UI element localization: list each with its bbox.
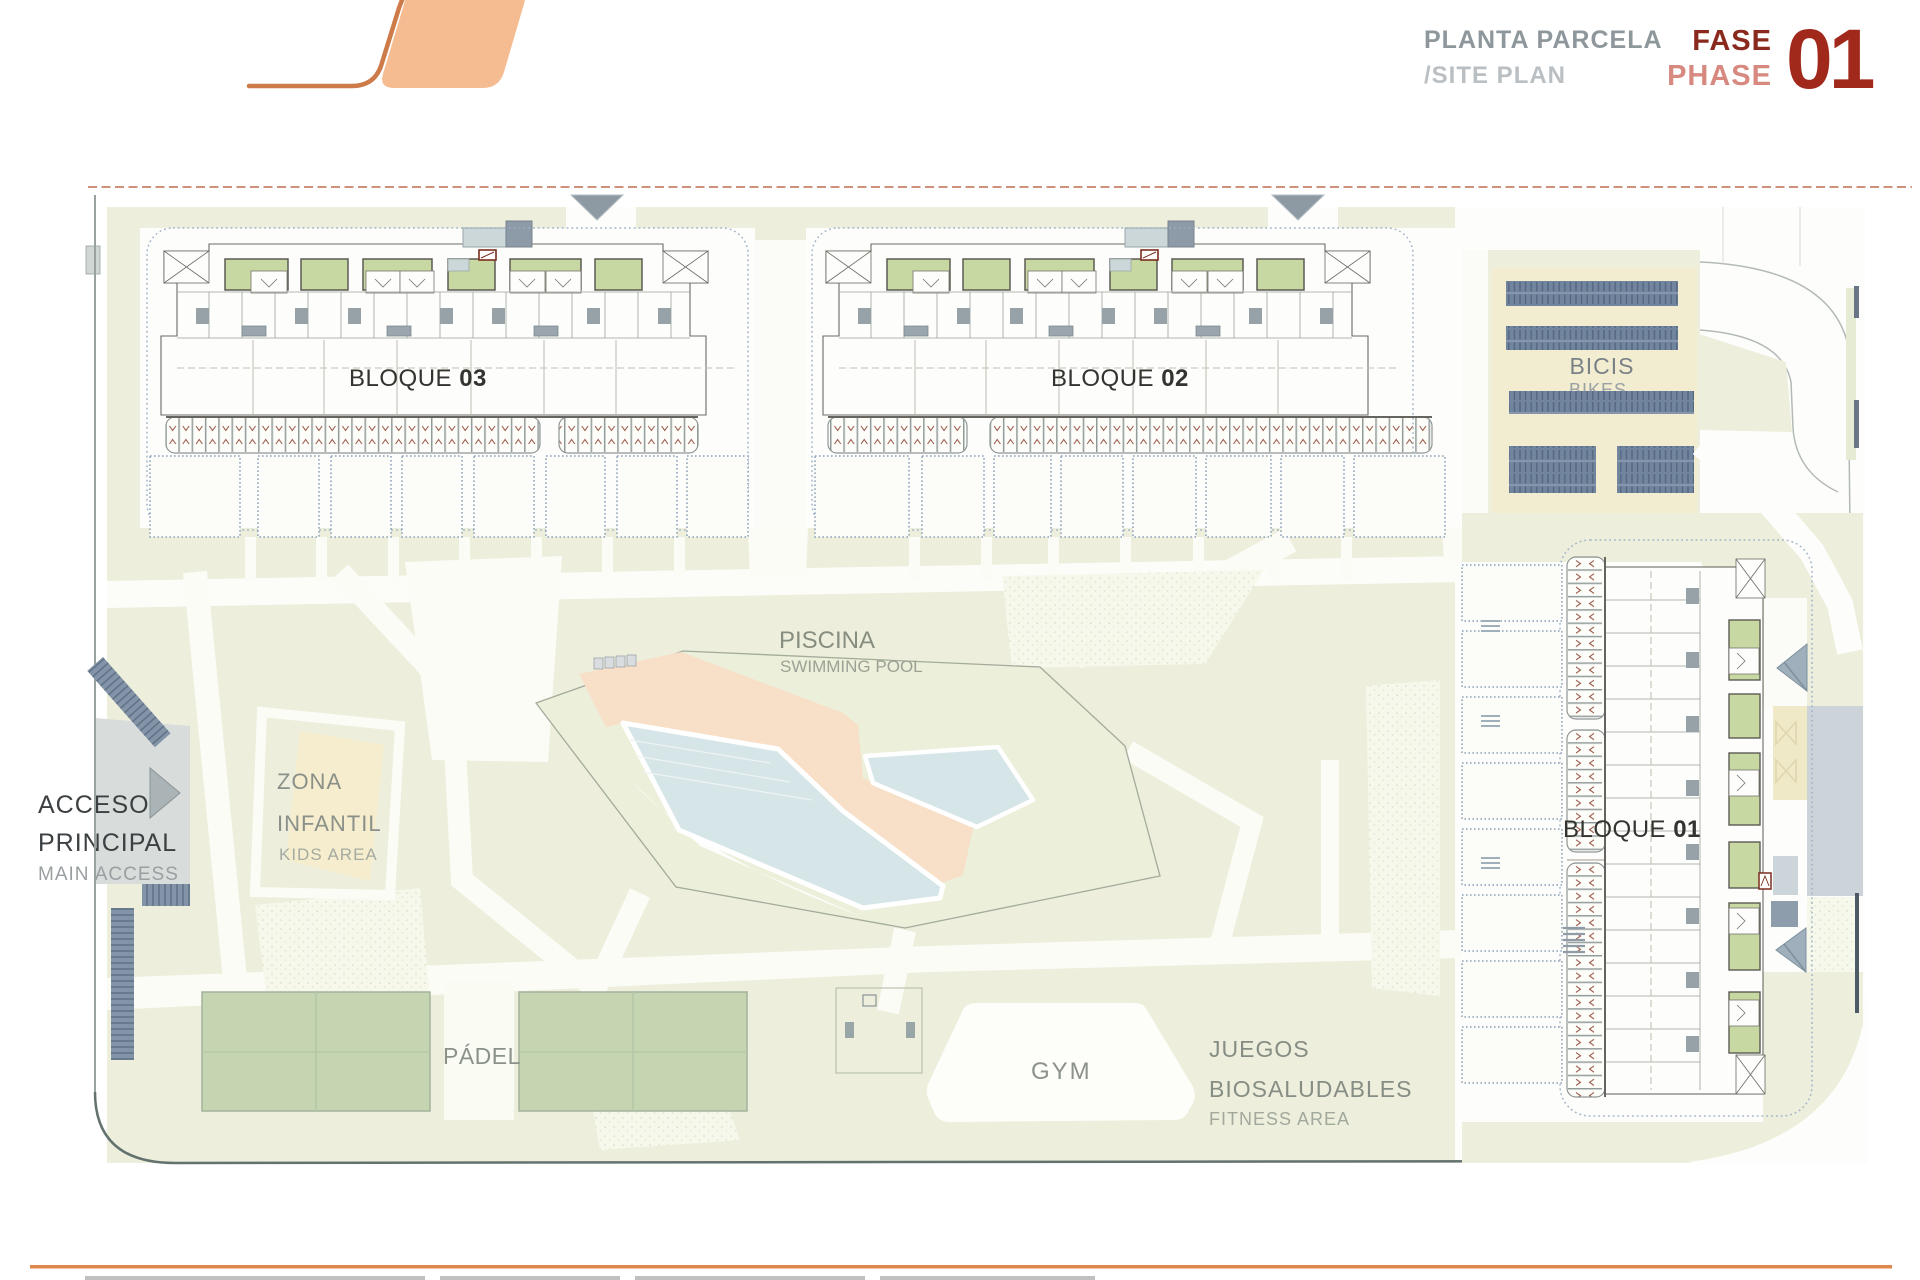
svg-text:FITNESS AREA: FITNESS AREA (1209, 1109, 1350, 1129)
svg-text:GYM: GYM (1031, 1058, 1092, 1085)
svg-text:PISCINA: PISCINA (779, 627, 875, 654)
svg-text:BLOQUE 02: BLOQUE 02 (1051, 365, 1189, 392)
svg-text:PLANTA PARCELA: PLANTA PARCELA (1424, 26, 1663, 54)
svg-text:BIOSALUDABLES: BIOSALUDABLES (1209, 1076, 1412, 1102)
svg-text:/SITE PLAN: /SITE PLAN (1424, 62, 1566, 89)
svg-text:BLOQUE 03: BLOQUE 03 (349, 365, 487, 392)
svg-text:BICIS: BICIS (1569, 353, 1634, 379)
svg-text:01: 01 (1786, 12, 1874, 106)
svg-text:ZONA: ZONA (277, 769, 342, 794)
svg-text:JUEGOS: JUEGOS (1209, 1036, 1310, 1062)
svg-text:PRINCIPAL: PRINCIPAL (38, 829, 177, 857)
svg-text:INFANTIL: INFANTIL (277, 811, 382, 836)
svg-text:PHASE: PHASE (1667, 60, 1772, 92)
svg-text:BLOQUE 01: BLOQUE 01 (1563, 816, 1701, 843)
svg-text:SWIMMING POOL: SWIMMING POOL (780, 657, 923, 676)
svg-text:ACCESO: ACCESO (38, 791, 150, 819)
svg-text:MAIN ACCESS: MAIN ACCESS (38, 864, 179, 885)
svg-text:PÁDEL: PÁDEL (443, 1043, 521, 1069)
svg-text:FASE: FASE (1692, 25, 1772, 57)
svg-text:KIDS AREA: KIDS AREA (279, 845, 378, 864)
